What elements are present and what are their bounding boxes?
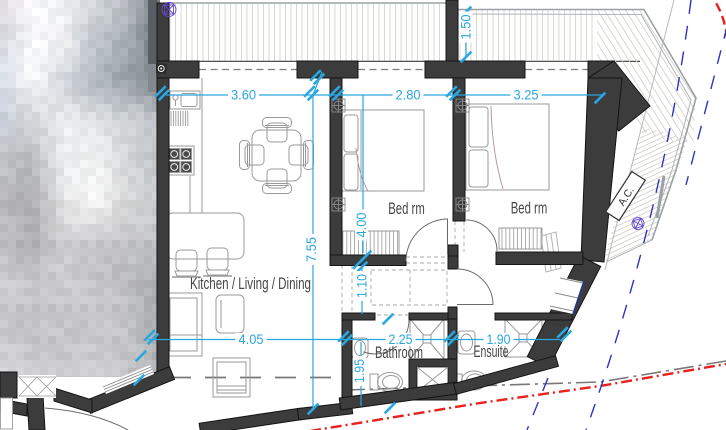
svg-text:1.50: 1.50 [459,15,474,40]
svg-text:Kitchen / Living / Dining: Kitchen / Living / Dining [190,274,311,293]
svg-text:Bed rm: Bed rm [388,199,425,218]
svg-text:1.95: 1.95 [352,359,367,383]
svg-text:1.10: 1.10 [355,274,370,298]
svg-text:4.00: 4.00 [354,213,369,238]
svg-text:Ensuite: Ensuite [474,342,509,361]
svg-text:4.05: 4.05 [239,332,264,347]
svg-text:Bed rm: Bed rm [511,199,548,218]
svg-text:7.55: 7.55 [304,237,319,262]
svg-text:3.60: 3.60 [231,88,256,103]
svg-text:Bathroom: Bathroom [375,343,423,362]
svg-text:2.80: 2.80 [396,88,421,103]
svg-text:3.25: 3.25 [514,88,539,103]
